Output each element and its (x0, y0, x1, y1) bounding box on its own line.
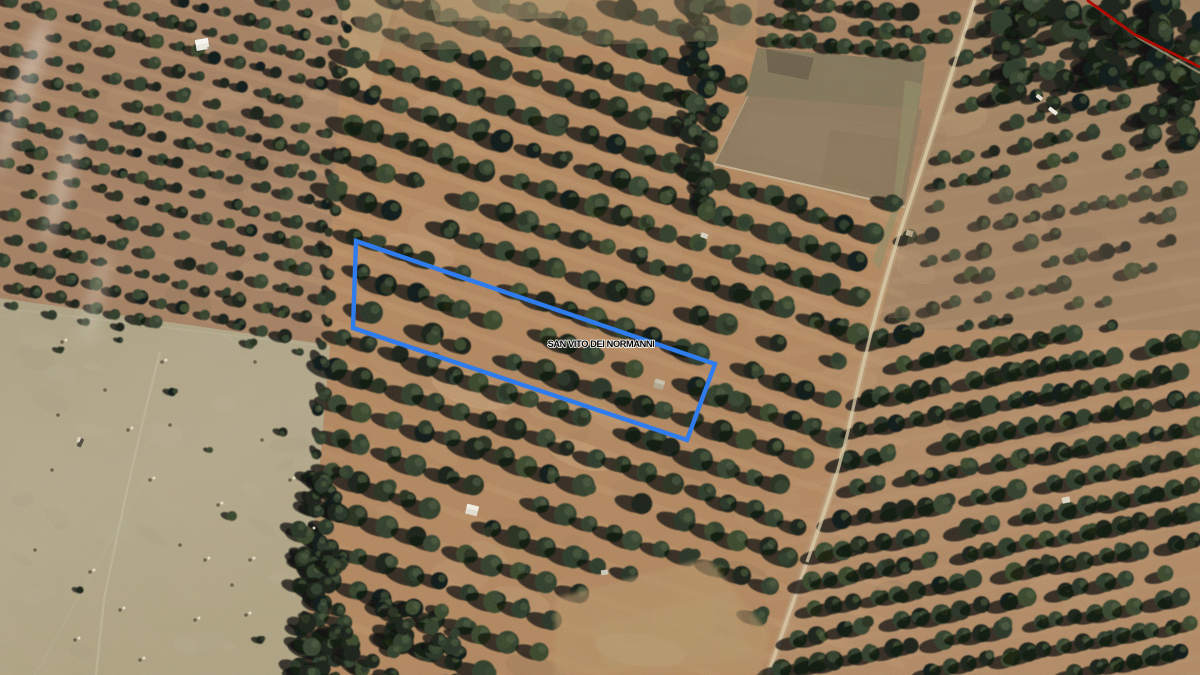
svg-text:SAN VITO DEI NORMANNI: SAN VITO DEI NORMANNI (548, 339, 655, 349)
